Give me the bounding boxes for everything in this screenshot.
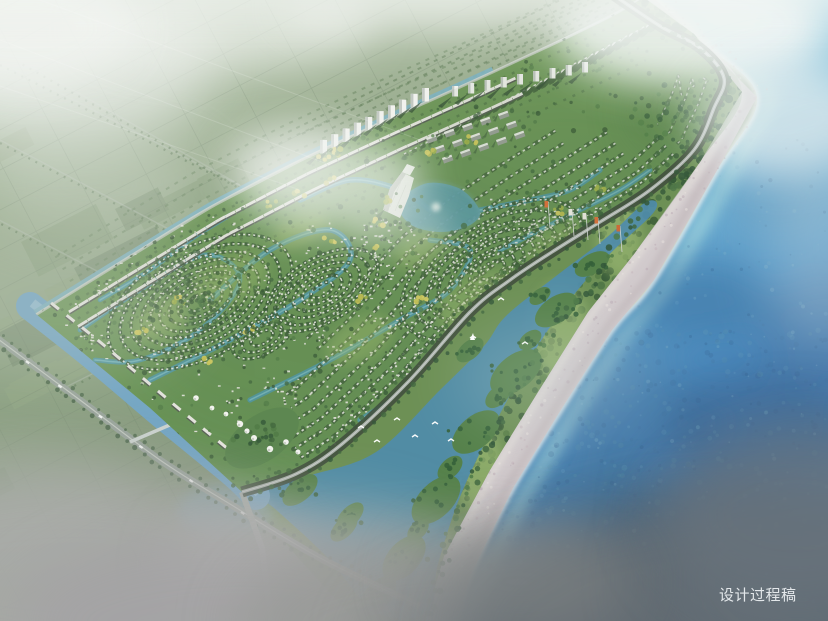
- svg-text:设计过程稿: 设计过程稿: [719, 587, 797, 604]
